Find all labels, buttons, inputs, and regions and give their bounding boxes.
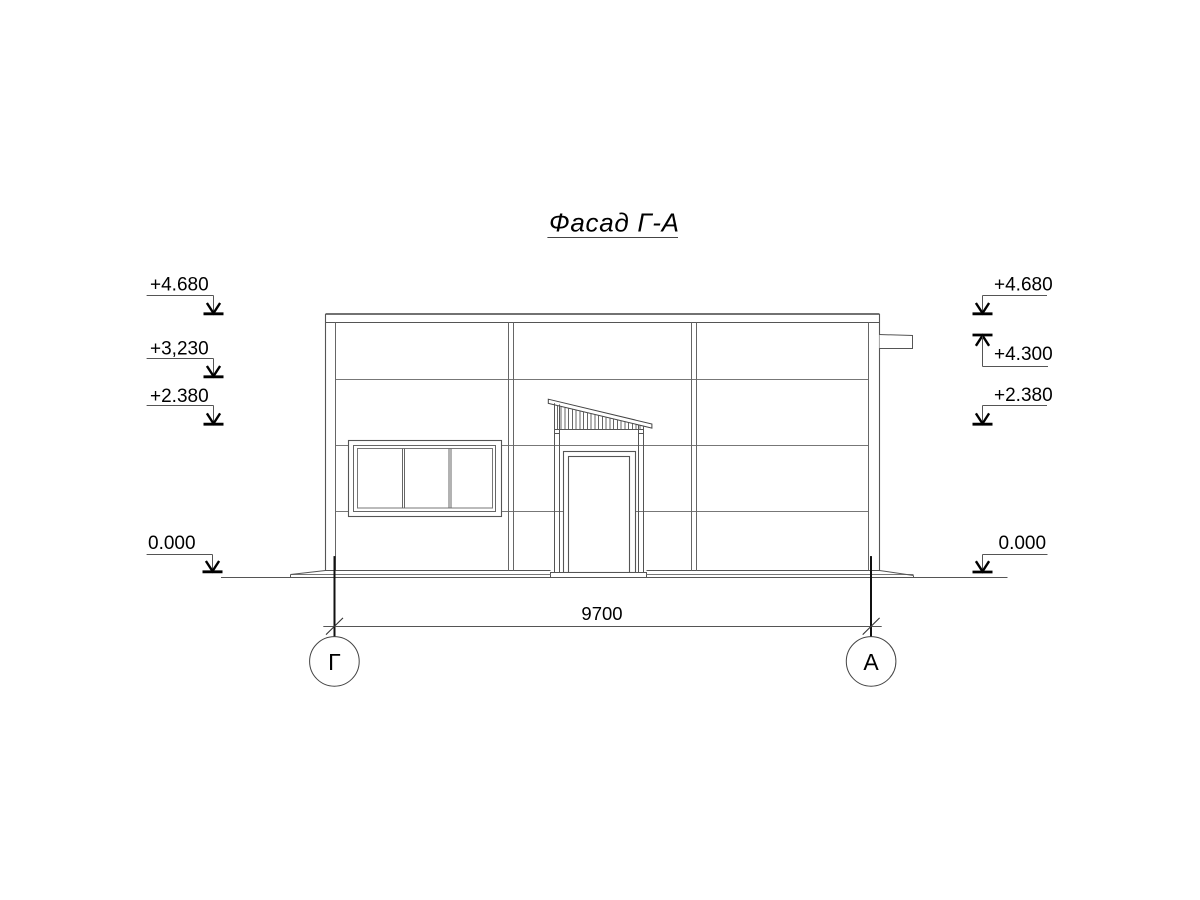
svg-text:А: А bbox=[863, 649, 879, 675]
svg-text:9700: 9700 bbox=[581, 603, 622, 624]
svg-text:+2.380: +2.380 bbox=[150, 386, 209, 407]
svg-text:+4.680: +4.680 bbox=[150, 275, 209, 296]
svg-text:0.000: 0.000 bbox=[999, 533, 1047, 554]
svg-text:+4.680: +4.680 bbox=[994, 275, 1053, 296]
svg-text:+3,230: +3,230 bbox=[150, 339, 209, 360]
svg-text:Г: Г bbox=[328, 649, 341, 675]
svg-text:+2.380: +2.380 bbox=[994, 385, 1053, 406]
svg-text:Фасад Г-А: Фасад Г-А bbox=[549, 208, 680, 238]
svg-text:0.000: 0.000 bbox=[148, 533, 196, 554]
svg-text:+4.300: +4.300 bbox=[994, 344, 1053, 365]
